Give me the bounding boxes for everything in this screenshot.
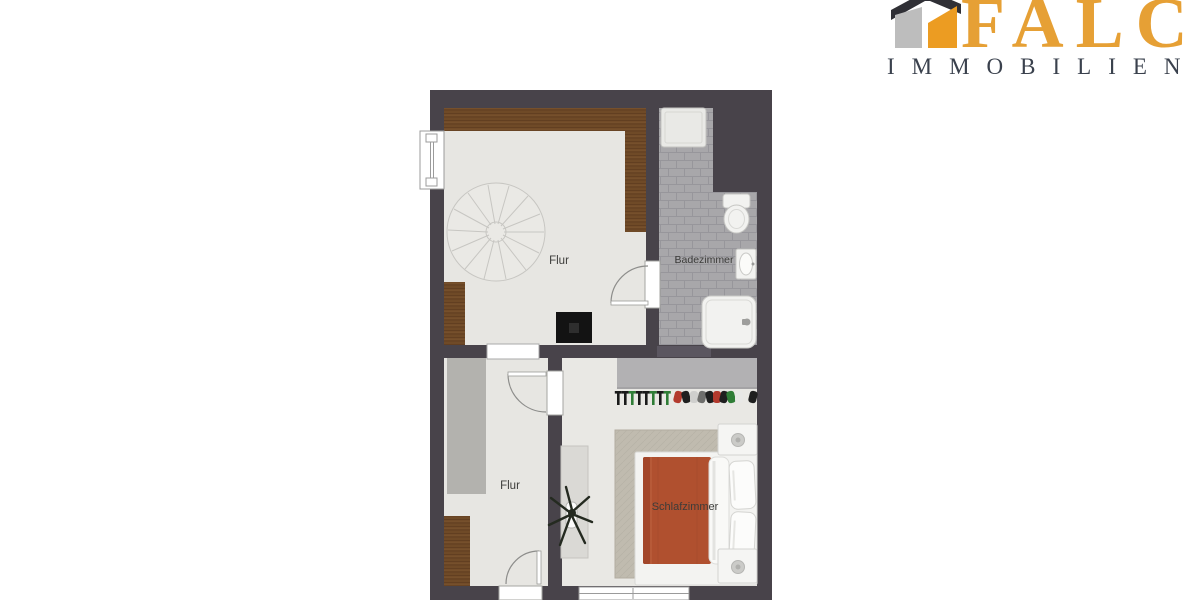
room-label-schlafzimmer: Schlafzimmer	[652, 501, 719, 513]
bathtub-icon	[702, 296, 756, 348]
hall-cabinet	[447, 358, 486, 494]
window-left-icon	[420, 131, 444, 189]
nightstand-top	[718, 424, 757, 455]
nightstand-bottom	[718, 549, 757, 583]
shower-icon	[661, 108, 706, 147]
room-label-flur-upper: Flur	[549, 255, 569, 267]
logo-subtitle-text: IMMOBILIEN	[887, 54, 1198, 80]
page: FALC IMMOBILIEN	[0, 0, 1200, 600]
room-label-flur-lower: Flur	[500, 480, 520, 492]
pillow	[729, 460, 756, 509]
wall-opening	[487, 344, 539, 359]
window-bottom-icon	[579, 587, 689, 600]
stove-icon	[556, 312, 592, 343]
wardrobe	[617, 358, 757, 389]
floor-plan: Flur Badezimmer Flur Schlafzimmer	[415, 85, 780, 600]
room-label-badezimmer: Badezimmer	[675, 254, 734, 266]
falc-logo: FALC IMMOBILIEN	[885, 0, 1200, 90]
toilet-icon	[723, 194, 750, 233]
sink-icon	[736, 249, 756, 279]
house-logo-icon	[891, 0, 963, 50]
spiral-staircase-icon	[447, 183, 545, 281]
